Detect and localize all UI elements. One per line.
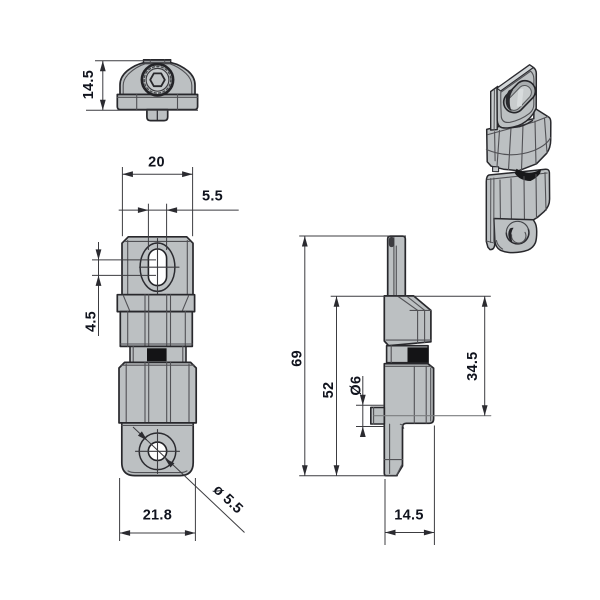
svg-text:14.5: 14.5 (81, 70, 97, 99)
svg-text:ø 5.5: ø 5.5 (210, 482, 246, 517)
svg-text:21.8: 21.8 (143, 508, 172, 524)
svg-text:34.5: 34.5 (465, 351, 481, 380)
svg-text:69: 69 (289, 350, 305, 367)
svg-text:52: 52 (321, 382, 337, 399)
svg-text:5.5: 5.5 (202, 189, 223, 205)
svg-text:Ø6: Ø6 (349, 376, 365, 396)
svg-text:14.5: 14.5 (394, 508, 423, 524)
svg-text:4.5: 4.5 (83, 311, 99, 332)
svg-text:20: 20 (148, 155, 165, 171)
